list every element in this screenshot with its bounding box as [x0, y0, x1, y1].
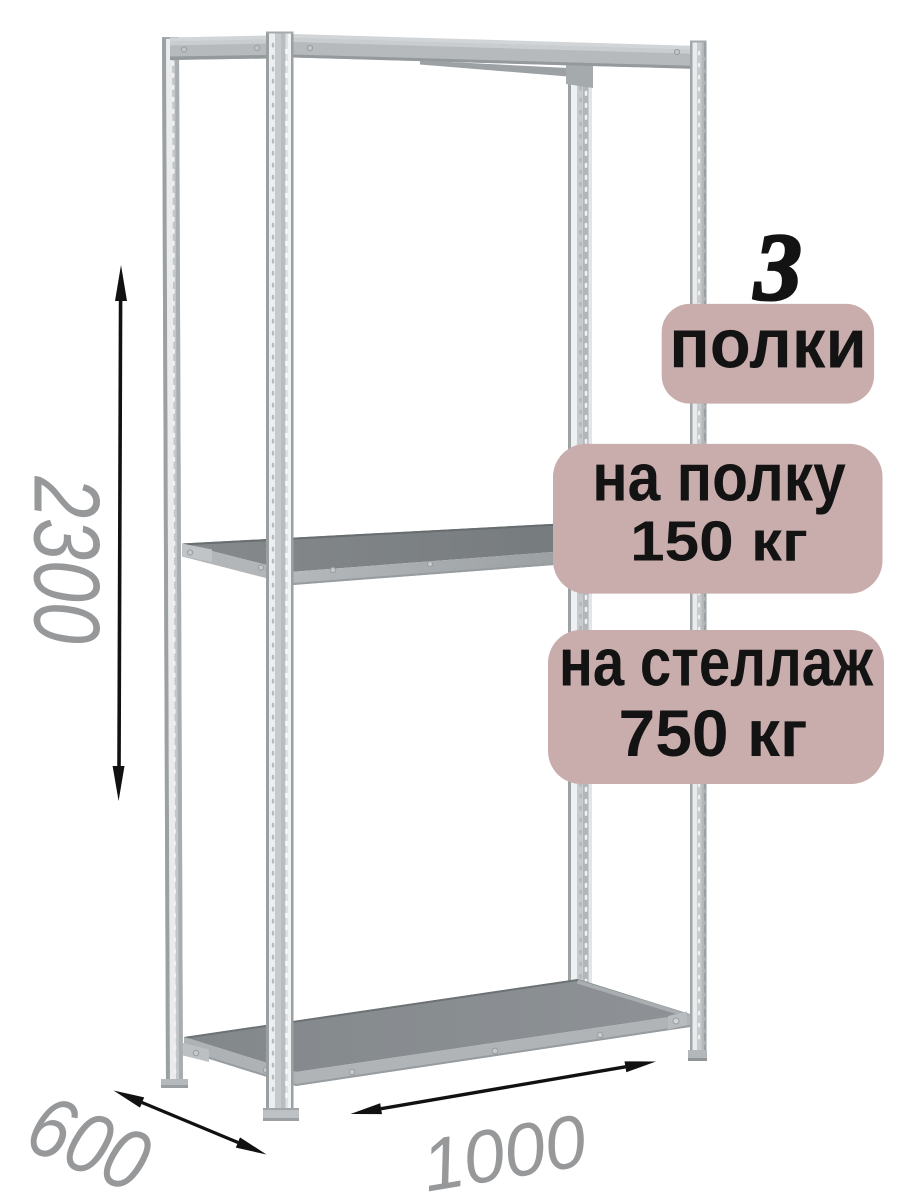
svg-text:полки: полки: [669, 304, 867, 383]
svg-text:на стеллаж: на стеллаж: [559, 626, 874, 701]
svg-text:600: 600: [15, 1075, 163, 1200]
svg-text:750 кг: 750 кг: [619, 696, 808, 770]
svg-text:150 кг: 150 кг: [630, 509, 808, 573]
svg-text:2300: 2300: [14, 475, 119, 643]
svg-text:1000: 1000: [416, 1098, 592, 1200]
svg-text:на полку: на полку: [592, 441, 846, 516]
